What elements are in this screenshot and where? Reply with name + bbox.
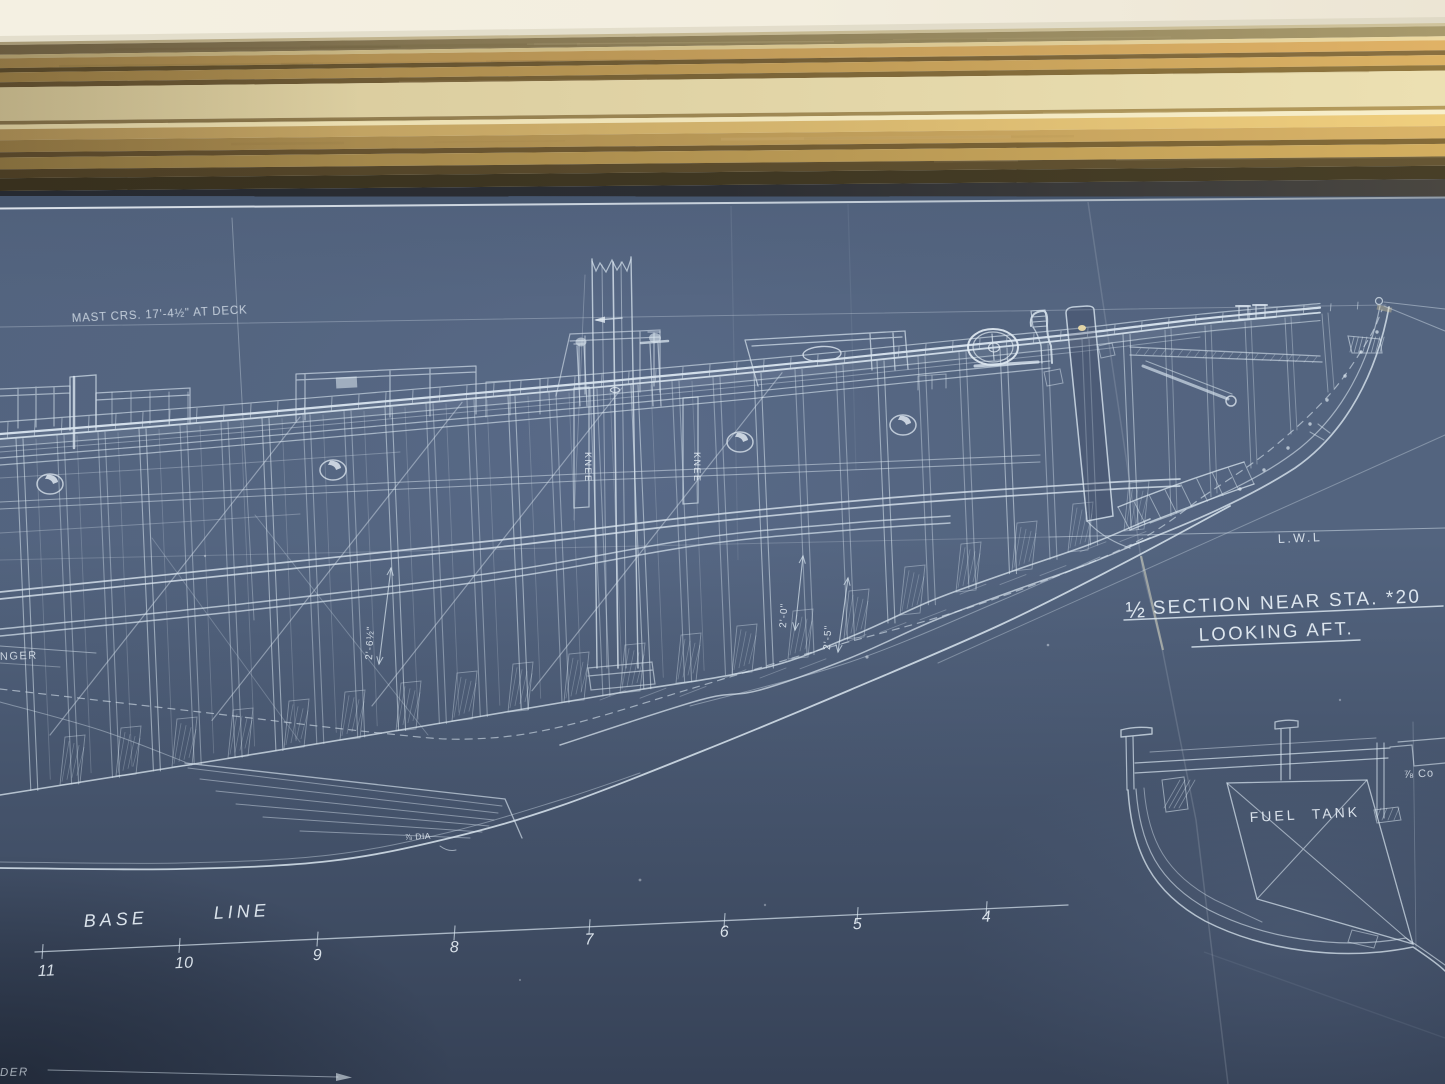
- svg-text:⅞ Co: ⅞ Co: [1404, 767, 1435, 781]
- svg-text:LINE: LINE: [213, 900, 270, 923]
- svg-text:DER: DER: [0, 1066, 29, 1079]
- svg-text:L.W.L: L.W.L: [1278, 530, 1323, 546]
- svg-text:4: 4: [981, 908, 991, 925]
- svg-text:⅞ DIA: ⅞ DIA: [405, 831, 432, 842]
- svg-text:NGER: NGER: [0, 650, 38, 663]
- svg-text:6: 6: [719, 924, 729, 941]
- svg-text:KNEE: KNEE: [583, 452, 593, 483]
- svg-text:10: 10: [174, 954, 194, 972]
- svg-text:2'-6½": 2'-6½": [364, 625, 377, 660]
- svg-text:9: 9: [312, 947, 322, 964]
- svg-text:2'-0": 2'-0": [778, 603, 790, 628]
- svg-text:5: 5: [852, 916, 862, 933]
- svg-text:2'-5": 2'-5": [822, 625, 834, 650]
- svg-text:KNEE: KNEE: [692, 452, 702, 483]
- svg-text:11: 11: [37, 962, 55, 980]
- svg-text:7: 7: [584, 931, 595, 948]
- svg-text:BASE: BASE: [83, 908, 148, 931]
- svg-text:TANK: TANK: [1311, 803, 1360, 822]
- svg-text:FUEL: FUEL: [1249, 807, 1298, 825]
- svg-text:8: 8: [449, 939, 459, 956]
